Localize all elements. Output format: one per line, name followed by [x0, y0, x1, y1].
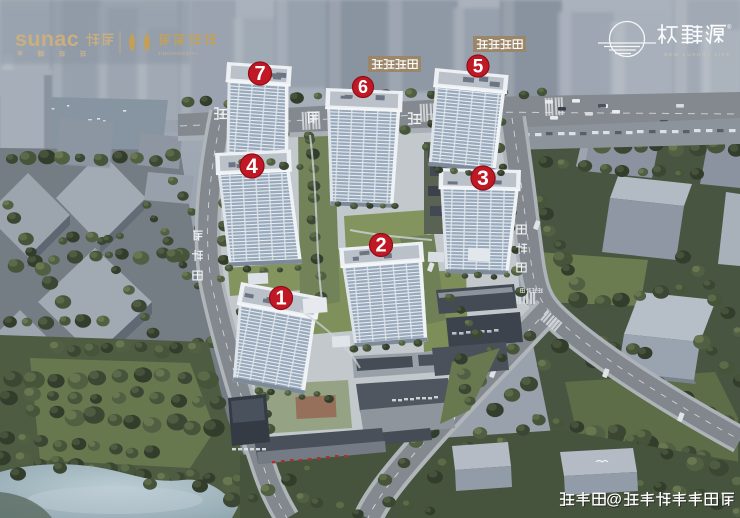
svg-text:7: 7: [254, 63, 265, 85]
svg-text:6: 6: [358, 77, 368, 97]
svg-text:JINCHANGQIYA: JINCHANGQIYA: [158, 51, 199, 56]
svg-text:@: @: [606, 492, 622, 509]
svg-text:1: 1: [275, 288, 286, 310]
svg-text:sunac: sunac: [15, 27, 79, 51]
svg-text:5: 5: [473, 56, 484, 77]
svg-text:3: 3: [477, 167, 489, 190]
svg-text:®: ®: [727, 24, 732, 31]
svg-text:2: 2: [375, 235, 386, 257]
svg-text:4: 4: [246, 155, 258, 178]
svg-text:NEW LUXURY LIFE: NEW LUXURY LIFE: [664, 52, 731, 58]
